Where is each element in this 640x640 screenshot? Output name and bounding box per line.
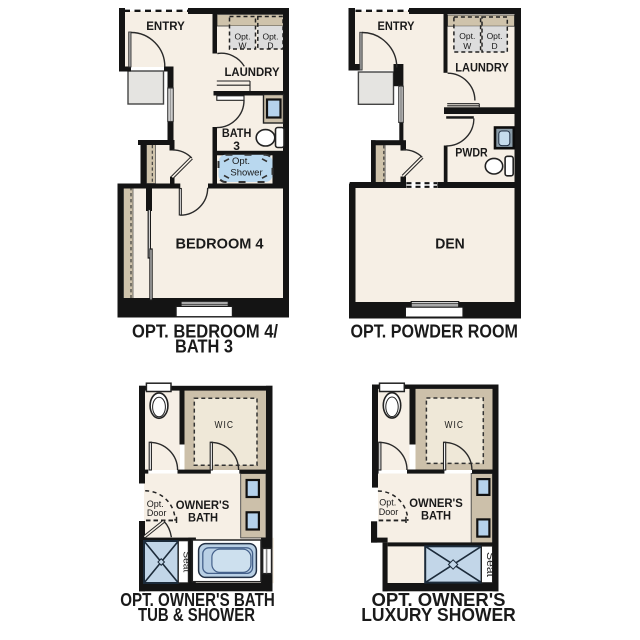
svg-text:3: 3 — [233, 139, 240, 153]
svg-text:BATH 3: BATH 3 — [175, 337, 233, 357]
svg-text:DEN: DEN — [435, 236, 465, 253]
svg-text:W: W — [463, 41, 471, 51]
svg-text:Door: Door — [147, 508, 167, 518]
svg-text:LAUNDRY: LAUNDRY — [225, 65, 280, 79]
svg-text:W: W — [238, 41, 246, 51]
svg-text:Seat: Seat — [181, 551, 192, 572]
svg-text:ENTRY: ENTRY — [146, 19, 185, 33]
svg-text:LAUNDRY: LAUNDRY — [455, 61, 509, 75]
svg-text:BATH: BATH — [421, 508, 451, 522]
svg-text:D: D — [492, 41, 498, 51]
svg-text:LUXURY SHOWER: LUXURY SHOWER — [361, 605, 516, 625]
svg-text:Opt.: Opt. — [487, 31, 503, 41]
svg-text:Door: Door — [379, 507, 399, 517]
svg-text:Shower: Shower — [230, 167, 262, 178]
svg-text:ENTRY: ENTRY — [378, 19, 415, 33]
svg-text:Opt.: Opt. — [459, 31, 475, 41]
svg-text:PWDR: PWDR — [455, 145, 488, 159]
svg-text:OPT. POWDER ROOM: OPT. POWDER ROOM — [350, 322, 518, 342]
svg-text:WIC: WIC — [445, 420, 465, 431]
svg-text:BATH: BATH — [188, 510, 218, 524]
svg-text:WIC: WIC — [215, 420, 235, 431]
svg-text:D: D — [267, 41, 273, 51]
svg-text:Opt.: Opt. — [232, 156, 250, 167]
svg-text:BEDROOM 4: BEDROOM 4 — [176, 236, 265, 253]
svg-text:Seat: Seat — [484, 552, 496, 577]
svg-text:TUB & SHOWER: TUB & SHOWER — [138, 605, 255, 625]
